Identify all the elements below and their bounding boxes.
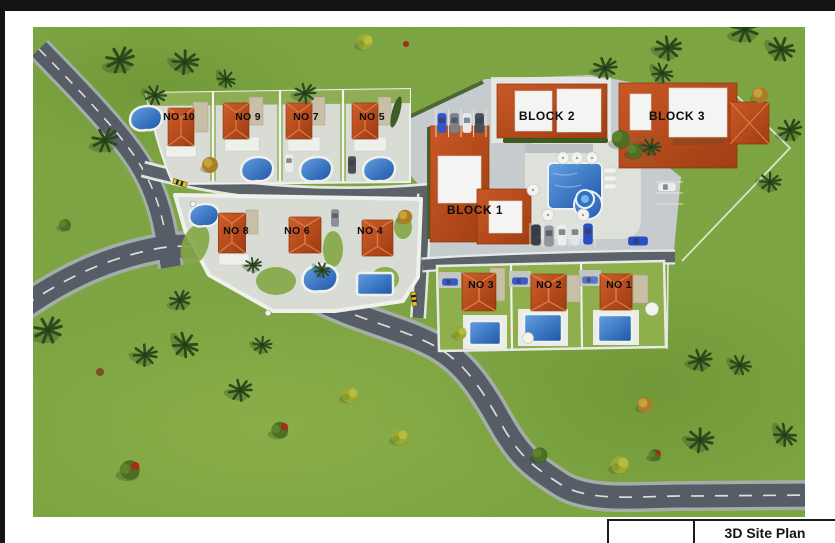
villa-label-no-1: NO 1 — [606, 279, 632, 291]
title-block-empty-cell — [607, 521, 695, 543]
villa-label-no-9: NO 9 — [235, 111, 261, 123]
sun-loungers — [604, 168, 616, 189]
street-lamp — [265, 310, 271, 316]
villa-label-no-2: NO 2 — [536, 279, 562, 291]
title-block: 3D Site Plan — [607, 519, 835, 543]
villa-label-no-7: NO 7 — [293, 111, 319, 123]
block-label-2: BLOCK 2 — [519, 109, 575, 123]
title-block-label: 3D Site Plan — [695, 521, 835, 543]
block-label-1: BLOCK 1 — [447, 203, 503, 217]
street-lamp — [190, 201, 196, 207]
window-top-bar — [0, 0, 835, 11]
villa-label-no-6: NO 6 — [284, 225, 310, 237]
block-3-annex — [730, 102, 769, 144]
villa-label-no-8: NO 8 — [223, 225, 249, 237]
window-left-bar — [0, 0, 5, 543]
site-plan-svg: NO 10 NO 9 NO 7 NO 5 NO 8 NO 6 NO 4 NO 3… — [33, 27, 805, 517]
villa-label-no-3: NO 3 — [468, 279, 494, 291]
villa-label-no-5: NO 5 — [359, 111, 385, 123]
block-label-3: BLOCK 3 — [649, 109, 705, 123]
villa-label-no-4: NO 4 — [357, 225, 383, 237]
villa-label-no-10: NO 10 — [163, 111, 195, 123]
site-plan-image: NO 10 NO 9 NO 7 NO 5 NO 8 NO 6 NO 4 NO 3… — [33, 27, 805, 517]
